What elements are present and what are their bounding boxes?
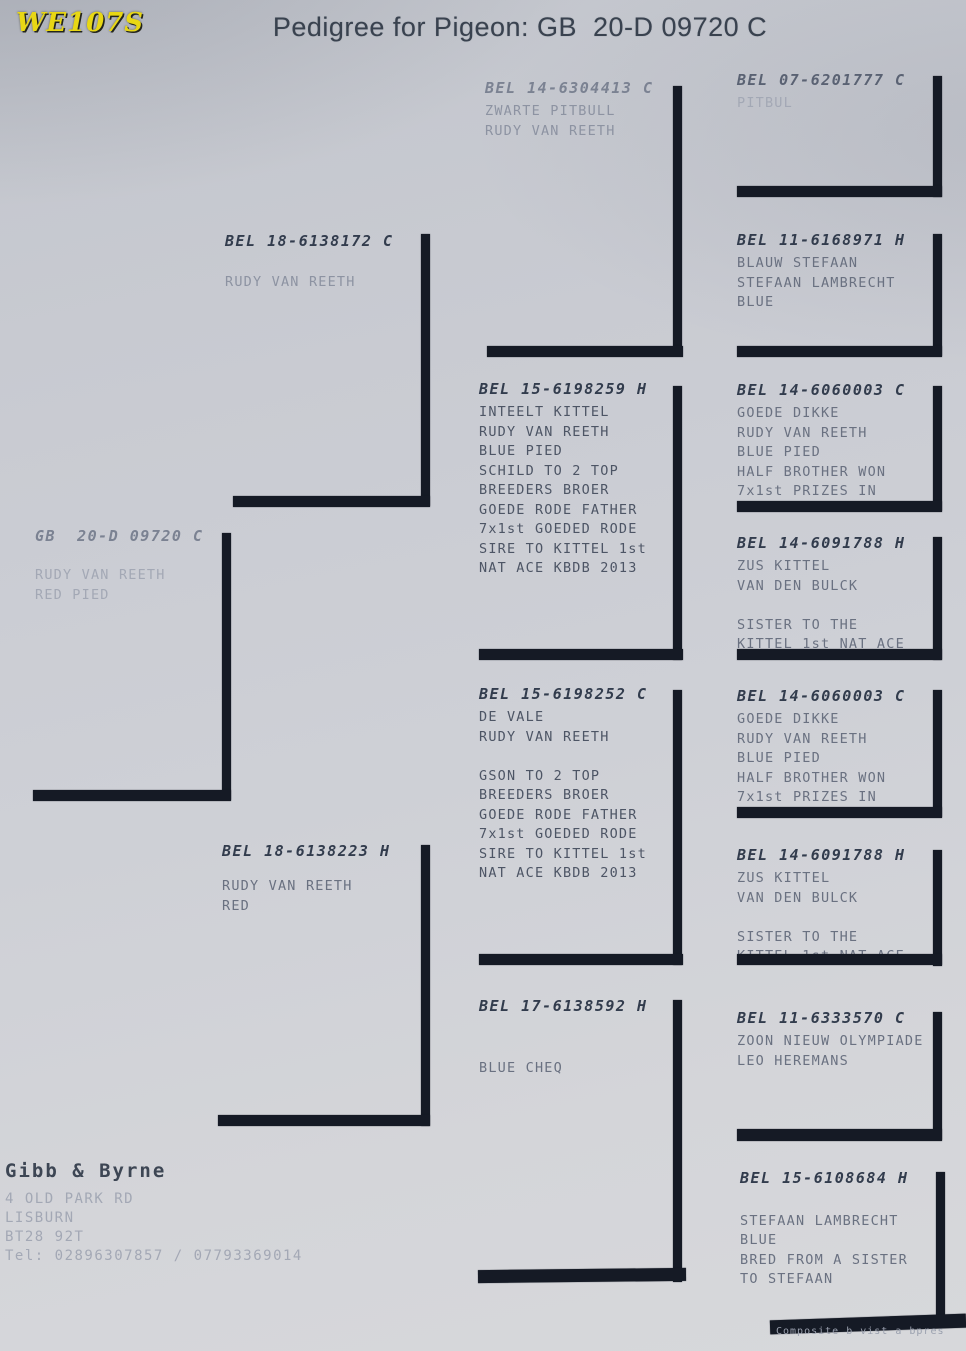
connector-line [218, 1115, 430, 1126]
ring-number: BEL 14-6304413 C [485, 78, 675, 98]
connector-line [33, 790, 231, 801]
pedigree-sheet: WE107S Pedigree for Pigeon: GB 20-D 0972… [0, 0, 966, 1351]
pedigree-node-dam-sire: BEL 15-6198252 C DE VALERUDY VAN REETHGS… [479, 684, 674, 884]
pedigree-node-g4-8: BEL 15-6108684 H STEFAAN LAMBRECHTBLUEBR… [740, 1168, 940, 1290]
node-details: RUDY VAN REETHRED PIED [35, 566, 230, 605]
connector-line [478, 1268, 686, 1283]
connector-line [933, 386, 942, 511]
ring-number: GB 20-D 09720 C [35, 526, 230, 546]
pedigree-node-g4-5: BEL 14-6060003 C GOEDE DIKKERUDY VAN REE… [737, 686, 932, 808]
connector-line [933, 690, 942, 817]
ring-number: BEL 14-6060003 C [737, 686, 932, 706]
node-details: RUDY VAN REETHRED [222, 877, 417, 916]
breeder-name: Gibb & Byrne [5, 1160, 166, 1182]
pedigree-node-g4-1: BEL 07-6201777 C PITBUL [737, 70, 932, 114]
node-details: GOEDE DIKKERUDY VAN REETHBLUE PIEDHALF B… [737, 404, 932, 502]
connector-line [673, 386, 682, 660]
node-details: RUDY VAN REETH [225, 273, 420, 293]
pedigree-node-g4-3: BEL 14-6060003 C GOEDE DIKKERUDY VAN REE… [737, 380, 932, 502]
node-details: DE VALERUDY VAN REETHGSON TO 2 TOPBREEDE… [479, 708, 674, 884]
node-details: PITBUL [737, 94, 932, 114]
node-details: ZOON NIEUW OLYMPIADELEO HEREMANS [737, 1032, 937, 1071]
connector-line [737, 501, 942, 512]
footer-watermark: Composite b vist a bpres [776, 1326, 945, 1337]
ring-number: BEL 11-6333570 C [737, 1008, 937, 1028]
node-details: BLAUW STEFAANSTEFAAN LAMBRECHTBLUE [737, 254, 932, 313]
connector-line [233, 496, 430, 507]
connector-line [933, 234, 942, 356]
connector-line [933, 537, 942, 660]
connector-line [737, 954, 942, 965]
node-details: INTEELT KITTELRUDY VAN REETHBLUE PIEDSCH… [479, 403, 674, 579]
connector-line [737, 186, 942, 197]
node-details: GOEDE DIKKERUDY VAN REETHBLUE PIEDHALF B… [737, 710, 932, 808]
ring-number: BEL 17-6138592 H [479, 996, 674, 1016]
connector-line [421, 845, 430, 1126]
ring-number: BEL 18-6138172 C [225, 231, 420, 251]
ring-number: BEL 07-6201777 C [737, 70, 932, 90]
pedigree-node-sire-sire: BEL 14-6304413 C ZWARTE PITBULLRUDY VAN … [485, 78, 675, 141]
connector-line [737, 346, 942, 357]
ring-number: BEL 14-6091788 H [737, 533, 932, 553]
breeder-address: 4 OLD PARK RDLISBURNBT28 92TTel: 0289630… [5, 1190, 303, 1266]
pedigree-node-sire: BEL 18-6138172 C RUDY VAN REETH [225, 231, 420, 293]
connector-line [421, 234, 430, 506]
connector-line [673, 1000, 682, 1282]
ring-number: BEL 15-6198259 H [479, 379, 674, 399]
connector-line [479, 649, 683, 660]
page-title: Pedigree for Pigeon: GB 20-D 09720 C [170, 12, 870, 43]
pedigree-node-subject: GB 20-D 09720 C RUDY VAN REETHRED PIED [35, 526, 230, 605]
pedigree-node-sire-dam: BEL 15-6198259 H INTEELT KITTELRUDY VAN … [479, 379, 674, 579]
pedigree-node-g4-7: BEL 11-6333570 C ZOON NIEUW OLYMPIADELEO… [737, 1008, 937, 1071]
catalog-code-badge: WE107S [16, 8, 144, 38]
pedigree-node-dam-dam: BEL 17-6138592 H BLUE CHEQ [479, 996, 674, 1079]
node-details: ZWARTE PITBULLRUDY VAN REETH [485, 102, 675, 141]
ring-number: BEL 14-6091788 H [737, 845, 932, 865]
connector-line [487, 346, 683, 357]
connector-line [933, 1012, 942, 1140]
connector-line [737, 649, 942, 660]
ring-number: BEL 14-6060003 C [737, 380, 932, 400]
connector-line [737, 1129, 942, 1141]
node-details: STEFAAN LAMBRECHTBLUEBRED FROM A SISTERT… [740, 1192, 940, 1290]
node-details: ZUS KITTELVAN DEN BULCKSISTER TO THEKITT… [737, 869, 932, 967]
pedigree-node-g4-2: BEL 11-6168971 H BLAUW STEFAANSTEFAAN LA… [737, 230, 932, 313]
connector-line [673, 690, 682, 965]
connector-line [673, 86, 682, 356]
ring-number: BEL 18-6138223 H [222, 841, 417, 861]
pedigree-node-dam: BEL 18-6138223 H RUDY VAN REETHRED [222, 841, 417, 916]
connector-line [479, 954, 683, 965]
node-details: BLUE CHEQ [479, 1020, 674, 1079]
ring-number: BEL 15-6108684 H [740, 1168, 940, 1188]
connector-line [222, 533, 231, 800]
ring-number: BEL 11-6168971 H [737, 230, 932, 250]
ring-number: BEL 15-6198252 C [479, 684, 674, 704]
node-details: ZUS KITTELVAN DEN BULCKSISTER TO THEKITT… [737, 557, 932, 655]
pedigree-node-g4-4: BEL 14-6091788 H ZUS KITTELVAN DEN BULCK… [737, 533, 932, 655]
pedigree-node-g4-6: BEL 14-6091788 H ZUS KITTELVAN DEN BULCK… [737, 845, 932, 967]
connector-line [933, 850, 942, 966]
connector-line [933, 76, 942, 197]
connector-line [936, 1172, 945, 1322]
connector-line [737, 807, 942, 818]
